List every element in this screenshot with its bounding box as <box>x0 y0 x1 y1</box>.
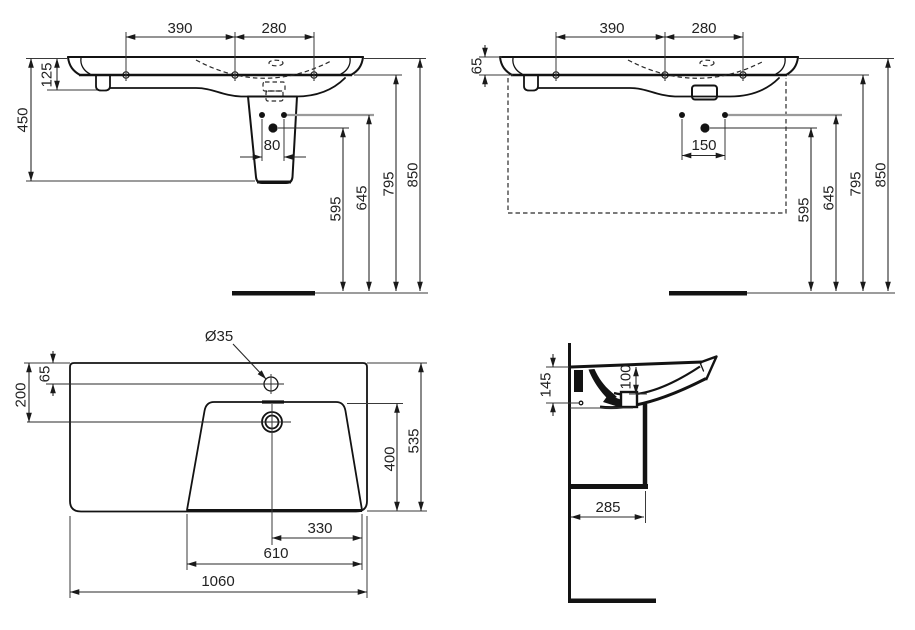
dim-label: 850 <box>872 162 889 187</box>
basin-profile <box>571 357 717 408</box>
floor-line <box>568 599 656 604</box>
dim-tap-span-left: 390 <box>126 20 235 80</box>
fixing-hole <box>281 112 287 118</box>
dim-label: 1060 <box>201 573 234 590</box>
dim-label: 610 <box>263 545 288 562</box>
drain-outlet <box>268 123 277 132</box>
dim-label: 150 <box>691 137 716 154</box>
dim-tap-span-right: 280 <box>235 20 314 80</box>
dim-label: 795 <box>380 171 397 196</box>
dim-label: 645 <box>353 185 370 210</box>
waste-pipe <box>570 404 648 487</box>
dim-label: 80 <box>264 137 281 154</box>
dim-drain-outlet-height: 595 <box>795 128 812 291</box>
dim-label: 850 <box>404 162 421 187</box>
dim-tap-span-left: 390 <box>556 20 665 80</box>
dim-underside-height: 795 <box>787 75 869 291</box>
dim-label: 535 <box>405 428 422 453</box>
dim-label: 145 <box>537 372 554 397</box>
overflow-hidden <box>700 60 714 66</box>
dim-label: 100 <box>617 364 634 389</box>
dim-rear-height: 145 <box>537 354 580 416</box>
front-view-wall-hung: 390 280 65 150 595 645 <box>468 20 895 296</box>
dim-label: 125 <box>38 62 55 87</box>
dim-label: 280 <box>261 20 286 37</box>
fixing-hole <box>259 112 265 118</box>
plan-view: Ø35 65 200 400 535 330 <box>12 328 427 598</box>
dim-label: 450 <box>14 107 31 132</box>
dim-label: 595 <box>795 197 812 222</box>
dim-label: 200 <box>12 382 29 407</box>
dim-tap-hole-offset: 65 <box>36 351 53 396</box>
dim-label: 330 <box>307 520 332 537</box>
dim-label: 645 <box>820 185 837 210</box>
basin-outline <box>68 57 363 97</box>
dim-rim-thickness: 65 <box>468 45 513 87</box>
dim-label: 390 <box>599 20 624 37</box>
basin-plan-outline <box>70 363 367 512</box>
dim-fixing-holes-height: 645 <box>353 115 370 291</box>
dim-underside-height: 795 <box>354 75 402 291</box>
dim-label: 595 <box>327 196 344 221</box>
front-view-with-pedestal: 390 280 125 450 80 595 <box>14 20 428 296</box>
overflow-hidden <box>269 60 283 66</box>
dim-label: 65 <box>36 366 53 383</box>
dim-label: 390 <box>167 20 192 37</box>
dim-fixing-holes-height: 645 <box>820 115 837 291</box>
washbasin-dimension-drawing: 390 280 125 450 80 595 <box>0 0 915 630</box>
technical-drawing-sheet: 390 280 125 450 80 595 <box>0 0 915 630</box>
drain-fitting <box>692 86 717 100</box>
diameter-label: Ø35 <box>205 328 233 345</box>
drain-outlet <box>700 123 709 132</box>
dim-tap-span-right: 280 <box>665 20 743 80</box>
dim-label: 285 <box>595 499 620 516</box>
dim-label: 65 <box>468 58 485 75</box>
fixing-hole <box>679 112 685 118</box>
side-section-view: 145 100 285 <box>537 343 716 603</box>
drain-hidden <box>263 82 285 91</box>
floor-line <box>232 291 428 296</box>
dim-drain-outlet-height: 595 <box>327 128 344 291</box>
dim-bowl-inner-depth: 100 <box>617 364 647 394</box>
dim-label: 795 <box>847 171 864 196</box>
tap-hole-callout: Ø35 <box>205 328 266 379</box>
furniture-unit-outline <box>508 78 786 213</box>
dim-label: 280 <box>691 20 716 37</box>
dim-bowl-depth: 400 <box>347 404 403 512</box>
dim-rim-top-height: 850 <box>798 59 894 292</box>
basin-outline <box>500 57 798 97</box>
bowl-plan-outline <box>187 402 362 510</box>
fixing-hole <box>722 112 728 118</box>
floor-line <box>669 291 895 296</box>
dim-trap-distance: 285 <box>571 491 646 523</box>
dim-label: 400 <box>381 446 398 471</box>
dim-bowl-width: 610 <box>187 514 362 570</box>
